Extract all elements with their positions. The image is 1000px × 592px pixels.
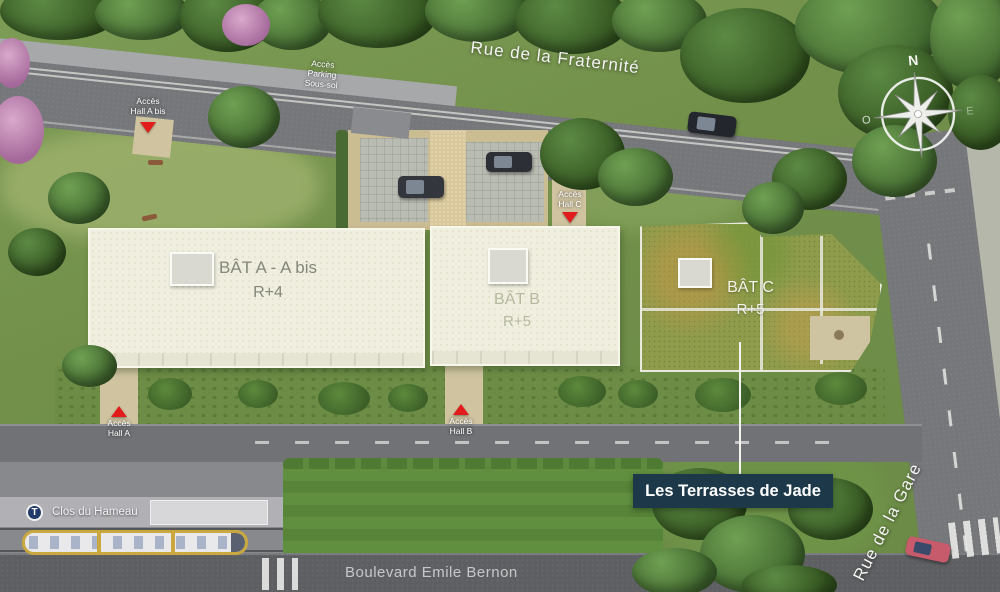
access-line: Hall B: [435, 427, 487, 437]
building-a-label: BÂT A - A bis R+4: [178, 256, 358, 304]
tram-windows: [29, 536, 241, 549]
building-c-floors: R+5: [693, 299, 808, 321]
bush: [815, 372, 867, 405]
tree-canopy: [680, 8, 810, 103]
compass-east: E: [966, 105, 974, 118]
tram-cab: [231, 533, 245, 552]
tram-stop-name: Clos du Hameau: [52, 506, 138, 518]
building-b-floors: R+5: [455, 311, 579, 333]
car-windshield: [406, 180, 423, 193]
tram-shelter: [150, 500, 268, 525]
tree-canopy: [318, 0, 438, 48]
grass-field: [283, 469, 663, 553]
flowering-tree: [222, 4, 270, 46]
access-line: Hall A: [93, 429, 145, 439]
building-a-name: BÂT A - A bis: [178, 256, 358, 281]
bush: [238, 380, 278, 408]
building-b-label: BÂT B R+5: [455, 288, 579, 333]
tree-canopy: [62, 345, 117, 387]
tree-canopy: [48, 172, 110, 224]
road-marking: [924, 224, 967, 552]
compass-north: N: [908, 52, 919, 69]
access-line: Hall A bis: [122, 107, 174, 117]
tree-canopy: [742, 182, 804, 234]
roof-terraces: [432, 351, 618, 364]
street-label-bernon: Boulevard Emile Bernon: [345, 564, 518, 581]
building-a-floors: R+4: [178, 281, 358, 304]
bush: [148, 378, 192, 410]
courtyard: [348, 130, 548, 230]
crosswalk: [948, 517, 1000, 559]
leader-line: [739, 342, 741, 474]
car-windshield: [913, 541, 932, 556]
crosswalk: [262, 558, 298, 590]
tree-canopy: [8, 228, 66, 276]
access-parking-label: Accès Parking Sous-sol: [295, 58, 349, 92]
site-plan: BÂT A - A bis R+4 BÂT B R+5 BÂT C R+5: [0, 0, 1000, 592]
tram-vehicle: [22, 530, 248, 555]
compass-rose-icon: N O E: [853, 47, 983, 181]
access-marker-up: [111, 406, 127, 417]
roof-access-box: [488, 248, 528, 284]
road-marking: [255, 441, 855, 444]
tram-segment-joint: [97, 533, 101, 552]
access-hall-a-label: Accès Hall A: [93, 419, 145, 439]
building-c-name: BÂT C: [693, 276, 808, 299]
green-wall: [336, 130, 348, 232]
access-marker-down: [562, 212, 578, 223]
tree-canopy: [632, 548, 717, 592]
access-line: Hall C: [544, 200, 596, 210]
access-hall-b-label: Accès Hall B: [435, 417, 487, 437]
bush: [558, 376, 606, 407]
bush: [388, 384, 428, 412]
project-name: Les Terrasses de Jade: [645, 482, 821, 501]
bush: [318, 382, 370, 415]
bench: [148, 160, 163, 165]
roof-terraces: [90, 353, 423, 366]
access-hall-a-bis-label: Accès Hall A bis: [122, 97, 174, 117]
compass-west: O: [862, 114, 872, 127]
building-b-name: BÂT B: [455, 288, 579, 311]
tree-canopy: [95, 0, 190, 40]
access-hall-c-label: Accès Hall C: [544, 190, 596, 210]
project-name-label: Les Terrasses de Jade: [633, 474, 833, 508]
access-marker-up: [453, 404, 469, 415]
car-windshield: [494, 156, 511, 168]
car-windshield: [696, 116, 716, 131]
terrace-table: [834, 330, 844, 340]
tram-corridor: [0, 462, 283, 553]
tram-badge-letter: T: [31, 507, 37, 518]
access-marker-down: [140, 122, 156, 133]
car: [486, 152, 532, 172]
tram-segment-joint: [171, 533, 175, 552]
car: [398, 176, 444, 198]
tram-badge-icon: T: [26, 504, 43, 521]
bush: [695, 378, 751, 412]
building-c-label: BÂT C R+5: [693, 276, 808, 321]
bush: [618, 380, 658, 408]
tree-canopy: [598, 148, 673, 206]
tree-canopy: [208, 86, 280, 148]
